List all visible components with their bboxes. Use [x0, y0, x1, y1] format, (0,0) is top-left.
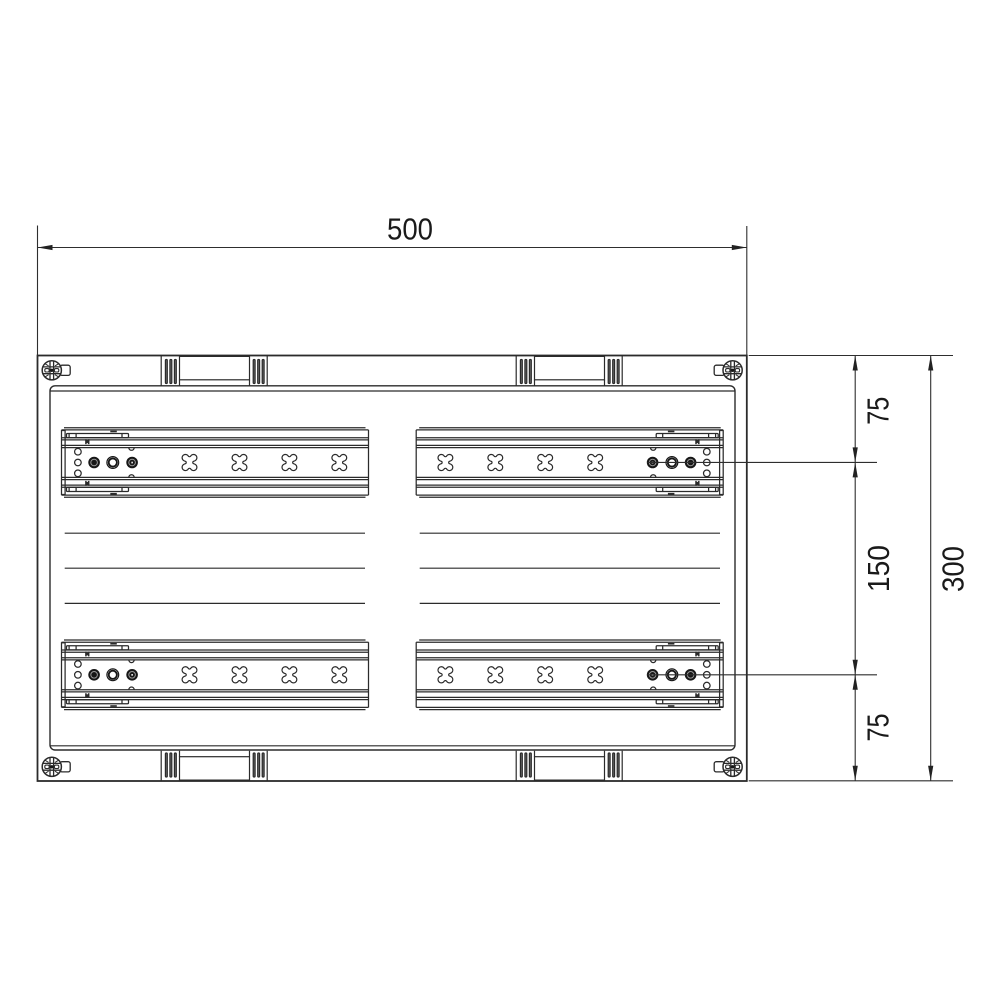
svg-text:500: 500	[387, 212, 433, 247]
svg-text:75: 75	[861, 714, 896, 742]
svg-text:300: 300	[936, 546, 971, 592]
svg-text:150: 150	[861, 545, 896, 592]
svg-text:75: 75	[861, 397, 896, 425]
